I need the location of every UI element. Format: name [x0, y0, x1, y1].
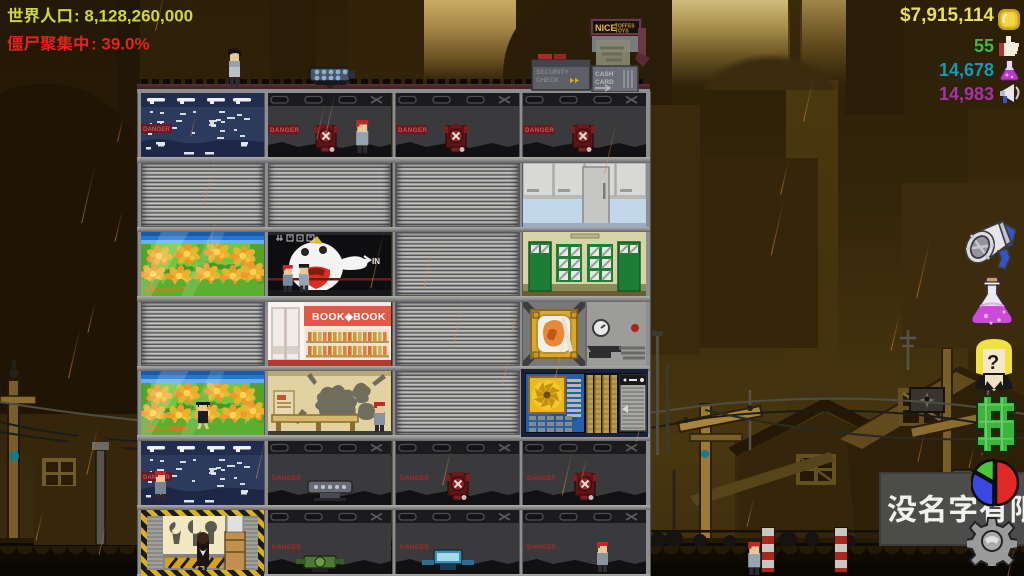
- svg-text:: 8,128,260,000: : 8,128,260,000: [74, 7, 193, 26]
- svg-text:DANGER: DANGER: [270, 127, 299, 134]
- svg-text:DANGER: DANGER: [525, 127, 554, 134]
- svg-text:TOYS: TOYS: [615, 29, 629, 35]
- svg-text:DANGER: DANGER: [527, 475, 556, 482]
- svg-text:CARD: CARD: [595, 79, 614, 86]
- svg-text:NICE: NICE: [595, 23, 617, 33]
- svg-text:SECURITY: SECURITY: [536, 69, 570, 76]
- svg-text:?: ?: [987, 352, 999, 374]
- svg-text:: 39.0%: : 39.0%: [91, 35, 150, 54]
- svg-text:DANGER: DANGER: [527, 544, 556, 551]
- svg-text:BOOK◆BOOK: BOOK◆BOOK: [312, 311, 386, 323]
- svg-text:DANGER: DANGER: [272, 475, 301, 482]
- svg-text:DANGER: DANGER: [400, 475, 429, 482]
- svg-text:DANGER: DANGER: [400, 544, 429, 551]
- svg-text:CASH: CASH: [595, 71, 614, 78]
- svg-text:DANGER: DANGER: [143, 126, 170, 133]
- svg-text:DANGER: DANGER: [398, 127, 427, 134]
- svg-text:DANGER: DANGER: [272, 544, 301, 551]
- svg-text:IN: IN: [372, 257, 380, 266]
- svg-text:CHECK: CHECK: [536, 77, 559, 84]
